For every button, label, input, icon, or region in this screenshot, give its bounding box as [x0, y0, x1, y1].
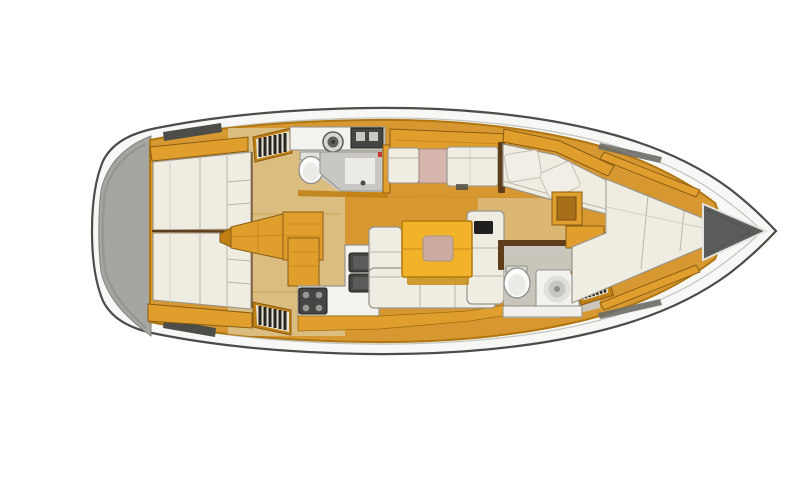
aft-head-panel	[345, 158, 375, 184]
chart-table	[419, 149, 447, 183]
dinette	[388, 129, 510, 193]
table-inset	[423, 236, 453, 261]
cabinet-knob	[361, 181, 366, 186]
red-marker	[378, 152, 382, 157]
galley-cabinet	[288, 238, 319, 286]
galley-sink-lower-bowl	[353, 277, 369, 289]
fwd-basin-drain	[554, 286, 560, 292]
galley-sink-upper-bowl	[353, 256, 369, 269]
toilet-fwd-seat	[508, 274, 526, 296]
dinette-seat-right	[447, 147, 498, 186]
boat-floorplan	[0, 0, 810, 500]
settee-device	[474, 221, 493, 234]
aft-berth-port	[153, 152, 251, 230]
vanity-basin-right	[369, 132, 378, 141]
round-sink-drain	[331, 140, 335, 144]
toilet-aft-seat	[303, 163, 319, 182]
seat-pedestal	[456, 184, 468, 190]
vanity-basin-left	[356, 132, 365, 141]
sofa-pillow-left	[504, 150, 542, 183]
vanity-unit	[351, 128, 383, 148]
stove	[299, 288, 327, 314]
fwd-head-shelf	[503, 306, 582, 317]
fwd-head-left-wall	[498, 240, 504, 270]
fwd-nightstand-top	[557, 197, 576, 220]
dinette-seat-left	[388, 148, 419, 183]
